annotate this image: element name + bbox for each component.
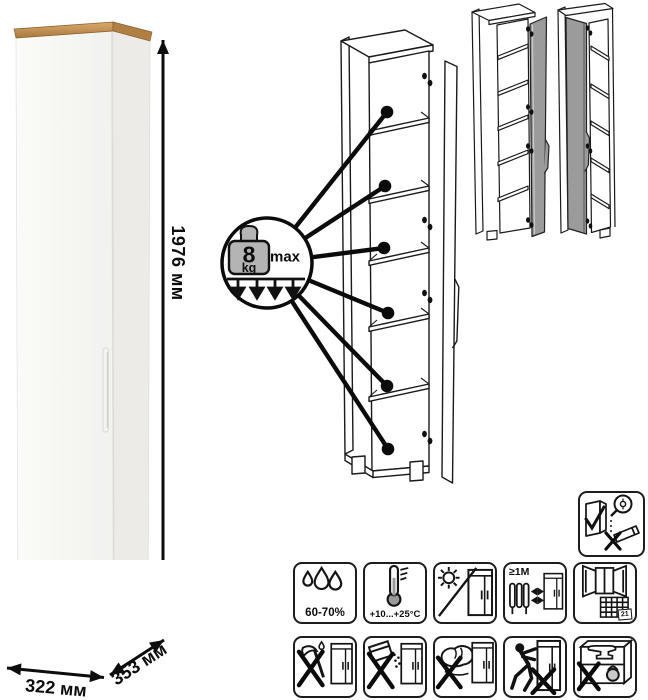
open-door xyxy=(442,61,457,483)
spacing-arrows xyxy=(533,589,543,603)
width-dimension-label: 322 мм xyxy=(24,676,87,699)
ventilate-room-calendar-icon: 21 xyxy=(573,562,637,624)
cabinet-photo xyxy=(14,22,152,560)
calendar-day-label: 21 xyxy=(618,608,633,620)
cabinet-line-drawing xyxy=(341,30,459,483)
no-abrasive-cleaning-icon xyxy=(433,636,497,698)
load-qualifier: max xyxy=(270,250,300,265)
load-unit: kg xyxy=(242,262,257,275)
variant-door-left xyxy=(558,4,615,239)
magnifier-icon xyxy=(611,496,632,517)
x-mark xyxy=(299,652,323,685)
no-sharp-impacts-icon xyxy=(293,636,357,698)
assemble-upright-only-icon xyxy=(578,491,645,557)
open-window-icon xyxy=(583,566,626,596)
radiator-icon xyxy=(510,584,529,614)
do-not-overload-icon xyxy=(573,636,637,698)
no-spilling-liquids-icon xyxy=(363,636,427,698)
variant-door-right xyxy=(472,4,549,240)
person-figure xyxy=(512,643,536,690)
assemble-upright-graphic xyxy=(580,493,642,554)
humidity-range-icon: 60-70% xyxy=(293,562,357,624)
no-direct-sunlight-icon xyxy=(433,562,497,624)
keep-distance-from-heat-icon: ≥1M xyxy=(503,562,567,624)
temperature-label: +10...+25°C xyxy=(365,610,425,620)
gray-door xyxy=(566,18,587,235)
do-not-drag-icon xyxy=(503,636,567,698)
humidity-label: 60-70% xyxy=(295,607,355,620)
sun-icon xyxy=(438,567,460,589)
scene-drawing xyxy=(0,0,648,560)
temperature-range-icon: +10...+25°C xyxy=(363,562,427,624)
width-arrow xyxy=(7,668,104,678)
kettlebell-icon xyxy=(607,667,619,681)
min-distance-label: ≥1M xyxy=(509,566,529,578)
product-spec-sheet: 1976 мм 322 мм 353 мм 8 kg max 60-70% xyxy=(0,0,648,700)
height-dimension-label: 1976 мм xyxy=(169,225,187,300)
